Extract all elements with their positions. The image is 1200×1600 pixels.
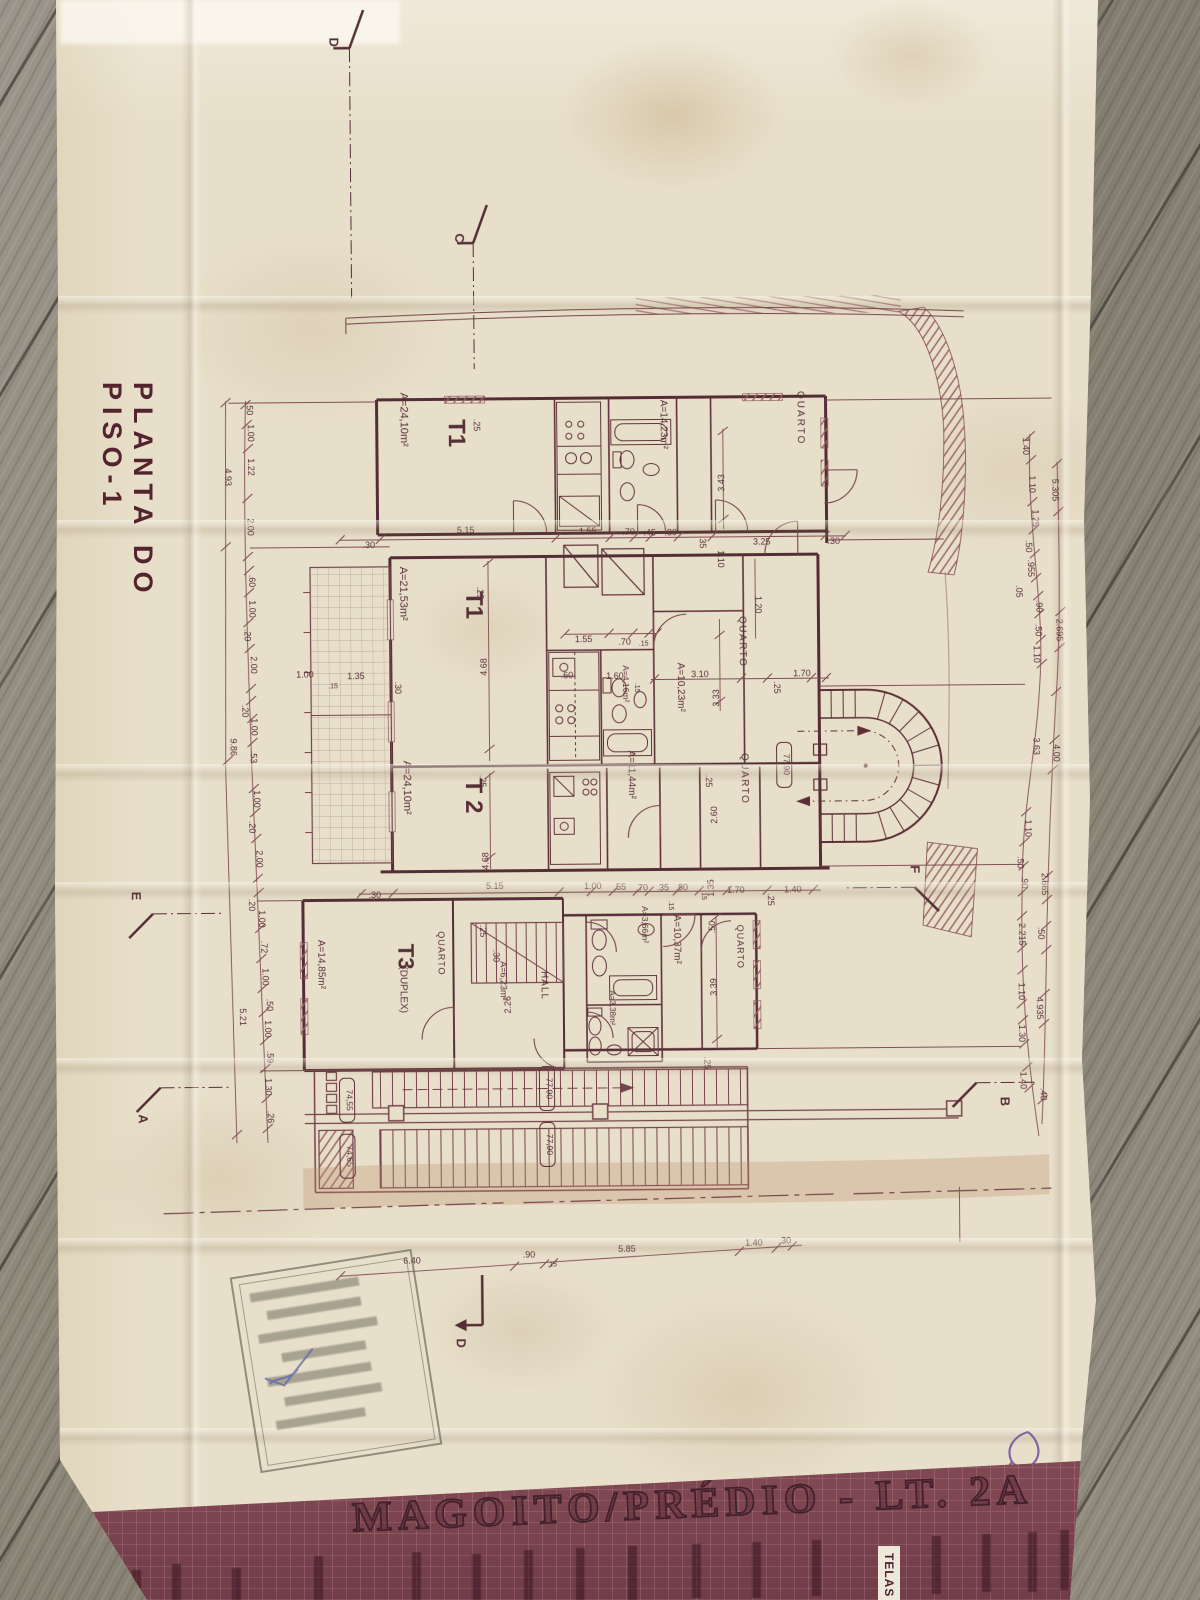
dimension-label: 1.10	[1027, 475, 1037, 493]
dimension-label: .40	[1039, 1088, 1049, 1101]
dimension-label: .60	[561, 670, 574, 680]
dimension-label: 1.60	[606, 671, 624, 681]
room-label: T1	[443, 419, 470, 447]
level-tag: 74,55	[345, 1090, 355, 1112]
room-label: A=14,23m²	[658, 400, 669, 450]
dimension-label: .20	[242, 629, 252, 642]
room-label: A=10,23m²	[675, 663, 686, 713]
dimension-label: .20	[240, 705, 250, 718]
paper-sheet: T1A=24,10m²A=14,23m²QUARTOT1A=21,53m²A=4…	[52, 0, 1100, 1600]
dimension-label: .05	[1014, 585, 1024, 598]
dimension-label: .25	[702, 1057, 712, 1070]
dimension-label: .90	[1034, 600, 1044, 613]
dimension-label: 3.43	[716, 474, 726, 492]
dimension-label: 4.68	[480, 852, 490, 870]
dimension-label: 1.00	[247, 600, 257, 618]
dimension-label: .955	[1026, 559, 1036, 577]
photo-of-floor-plan: T1A=24,10m²A=14,23m²QUARTOT1A=21,53m²A=4…	[0, 0, 1200, 1600]
dimension-label: 1.22	[246, 458, 256, 476]
dimension-label: .25	[766, 893, 776, 906]
dimension-label: .20	[247, 899, 257, 912]
room-label: (DUPLEX)	[397, 966, 408, 1013]
dimension-label: .25	[704, 775, 714, 788]
room-label: A=21,53m²	[397, 567, 409, 622]
band-text-smudge	[812, 1540, 821, 1596]
section-letter: F	[908, 865, 923, 873]
entry-squares	[564, 545, 644, 596]
dimension-label: 1.40	[1018, 1072, 1028, 1090]
dimension-label: .15	[667, 900, 674, 910]
section-letter: A	[136, 1114, 151, 1124]
dimension-label: .15	[547, 1261, 557, 1268]
dimension-label: .45	[643, 528, 656, 538]
dimension-label: 1.70	[727, 885, 745, 895]
dimension-label: .72	[259, 941, 269, 954]
dimension-label: .25	[478, 775, 488, 788]
band-text-smudge	[314, 1556, 323, 1600]
dimension-label: .50	[707, 921, 717, 934]
dimension-label: 2.665	[1040, 873, 1050, 896]
band-text-smudge	[1028, 1532, 1037, 1592]
dimension-label: 1.40	[784, 884, 802, 894]
stamp-inner-border	[239, 1258, 436, 1466]
dimension-label: 5.305	[1050, 479, 1060, 502]
dimension-label: .25	[772, 681, 782, 694]
dimension-label: .70	[622, 527, 635, 537]
room-label: QUARTO	[794, 391, 805, 446]
dimension-label: .30	[393, 681, 403, 694]
dimension-label: .80	[675, 882, 688, 892]
band-text-smudge	[628, 1546, 637, 1600]
dimension-label: 2.00	[249, 656, 259, 674]
section-letter: E	[129, 892, 144, 901]
terrace-lines	[346, 305, 968, 794]
dimension-label: .26	[266, 1111, 276, 1124]
dimension-label: .15	[639, 641, 649, 648]
dimension-label: .25	[478, 925, 488, 938]
dimension-label: .50	[1036, 927, 1046, 940]
dimension-label: 1.55	[575, 634, 593, 644]
dimension-label: .30	[362, 540, 375, 550]
section-letter: D	[326, 38, 341, 48]
dimension-label: 1.00	[246, 424, 256, 442]
dimension-label: 1.00	[257, 910, 267, 928]
room-label: A=6,23m²	[498, 961, 508, 1000]
telas-column: TELAS	[878, 1546, 900, 1600]
dimension-label: .35	[656, 882, 669, 892]
band-text-smudge	[412, 1552, 421, 1600]
floor-plan-drawing: T1A=24,10m²A=14,23m²QUARTOT1A=21,53m²A=4…	[52, 0, 1100, 1600]
dimension-label: 1.55	[579, 526, 597, 536]
room-label: HALL	[538, 971, 549, 1000]
dimension-label: .15	[633, 683, 640, 693]
dimension-label: .60	[247, 575, 257, 588]
dimension-label: .50	[1016, 856, 1026, 869]
plan-title: PLANTA DO PISO-1	[96, 382, 158, 682]
dimension-label: .25	[472, 419, 482, 432]
dimension-label: 1.25	[1030, 509, 1040, 527]
dimension-label: 1.40	[1021, 437, 1031, 455]
dimension-label: .70	[635, 883, 648, 893]
section-letter: D	[454, 1338, 469, 1348]
ground-strip	[163, 1154, 1051, 1214]
dimension-label: 1.30	[1017, 1025, 1027, 1043]
dimension-label: 2.60	[709, 806, 719, 824]
dimension-label: 5.15	[486, 881, 504, 891]
dimension-label: .90	[1020, 876, 1030, 889]
room-label: A=10,37m²	[671, 915, 682, 965]
dimension-label: 9.86	[228, 738, 238, 756]
dimension-label: .30	[369, 890, 382, 900]
dimension-label: .30	[779, 1235, 792, 1245]
dimension-label: 1.00	[252, 790, 262, 808]
band-text-smudge	[576, 1548, 585, 1600]
band-text-smudge	[932, 1536, 941, 1594]
dimension-label: 1.00	[249, 718, 259, 736]
dimension-label: 1.40	[745, 1238, 763, 1248]
telas-label: TELAS	[882, 1553, 896, 1597]
room-label: QUARTO	[436, 931, 446, 975]
band-text-smudge	[982, 1534, 991, 1592]
room-label: A=3,38m²	[608, 990, 617, 1025]
section-letter: C	[452, 233, 467, 243]
dimension-label: .30	[827, 536, 840, 546]
room-label: A=24,10m²	[401, 761, 413, 816]
blue-pen-mark	[254, 1335, 331, 1395]
room-label: A=3,66m²	[640, 906, 650, 943]
dimension-label: .35	[698, 536, 708, 549]
band-text-smudge	[232, 1568, 241, 1600]
dimension-label: 1.30	[263, 1078, 273, 1096]
dimension-label: 1.10	[1017, 983, 1027, 1001]
dimension-label: 5.15	[457, 525, 475, 535]
dimension-label: .15	[700, 890, 707, 900]
dimension-label: 2.00	[254, 850, 264, 868]
dimension-label: 1.10	[1023, 819, 1033, 837]
terrain-hatch	[636, 295, 979, 940]
dimension-label: 4.68	[479, 658, 489, 676]
section-letter: B	[998, 1097, 1013, 1107]
dimension-label: .59	[265, 1051, 275, 1064]
band-text-smudge	[752, 1542, 761, 1598]
dimension-label: 3.25	[753, 537, 771, 547]
room-label: QUARTO	[735, 925, 745, 969]
room-label: A=11,44m²	[626, 750, 637, 799]
dimension-label: 2.00	[246, 518, 256, 536]
band-text-smudge	[524, 1550, 533, 1600]
dimension-label: 1.10	[716, 550, 726, 568]
room-label: A=14,85m²	[315, 940, 326, 990]
balcony	[303, 567, 393, 864]
dimension-label: 1.35	[347, 671, 365, 681]
level-tag: 77,90	[544, 1078, 554, 1100]
dimension-label: 5.85	[618, 1244, 636, 1254]
dimension-label: 2.215	[1017, 923, 1027, 946]
dimension-label: 1.00	[296, 669, 314, 679]
level-tag: 77,90	[782, 754, 792, 776]
band-text-smudge	[172, 1564, 181, 1600]
dimension-label: 4.00	[1052, 744, 1062, 762]
room-label: QUARTO	[736, 616, 747, 668]
dimension-label: .50	[1033, 624, 1043, 637]
room-label: A=24,10m²	[397, 393, 409, 448]
dimension-label: 1.00	[584, 881, 602, 891]
dimension-label: .30	[491, 950, 501, 963]
dimension-label: .80	[664, 527, 677, 537]
dimension-label: .50	[265, 999, 275, 1012]
dimension-label: 1.10	[1032, 645, 1042, 663]
dimension-label: 3.63	[1031, 737, 1041, 755]
band-text-smudge	[472, 1554, 481, 1600]
dimension-label: .90	[523, 1250, 536, 1260]
dimension-label: 2.695	[1054, 619, 1064, 642]
dimension-label: 5.21	[238, 1008, 248, 1026]
dimension-label: 1.00	[263, 1020, 273, 1038]
dimension-label: 3.33	[711, 689, 721, 707]
dimension-label: 3.10	[691, 669, 709, 679]
dimension-label: 1.00	[260, 968, 270, 986]
dimension-label: 1.20	[753, 596, 763, 614]
approval-stamp	[230, 1249, 443, 1473]
curved-stair	[795, 689, 942, 842]
dimension-label: 2.26	[503, 996, 513, 1014]
band-text-smudge	[1060, 1530, 1069, 1590]
dimension-label: 3.39	[709, 978, 719, 996]
level-tag: 77,90	[545, 1134, 555, 1156]
dimension-label: .55	[613, 882, 626, 892]
dimension-label: .53	[249, 751, 259, 764]
dimension-label: .50	[1024, 540, 1034, 553]
room-label: QUARTO	[739, 753, 750, 805]
dimension-label: 4.93	[223, 468, 233, 486]
band-text-smudge	[692, 1544, 701, 1598]
dimension-label: .15	[328, 683, 338, 690]
level-tag: 74,65	[345, 1146, 355, 1168]
dimension-label: .70	[618, 637, 631, 647]
dimension-label: 1.70	[793, 668, 811, 678]
dimension-label: .25	[475, 587, 485, 600]
dimension-label: .20	[247, 821, 257, 834]
dimension-label: .50	[245, 403, 255, 416]
dimension-label: 4.935	[1035, 997, 1045, 1020]
